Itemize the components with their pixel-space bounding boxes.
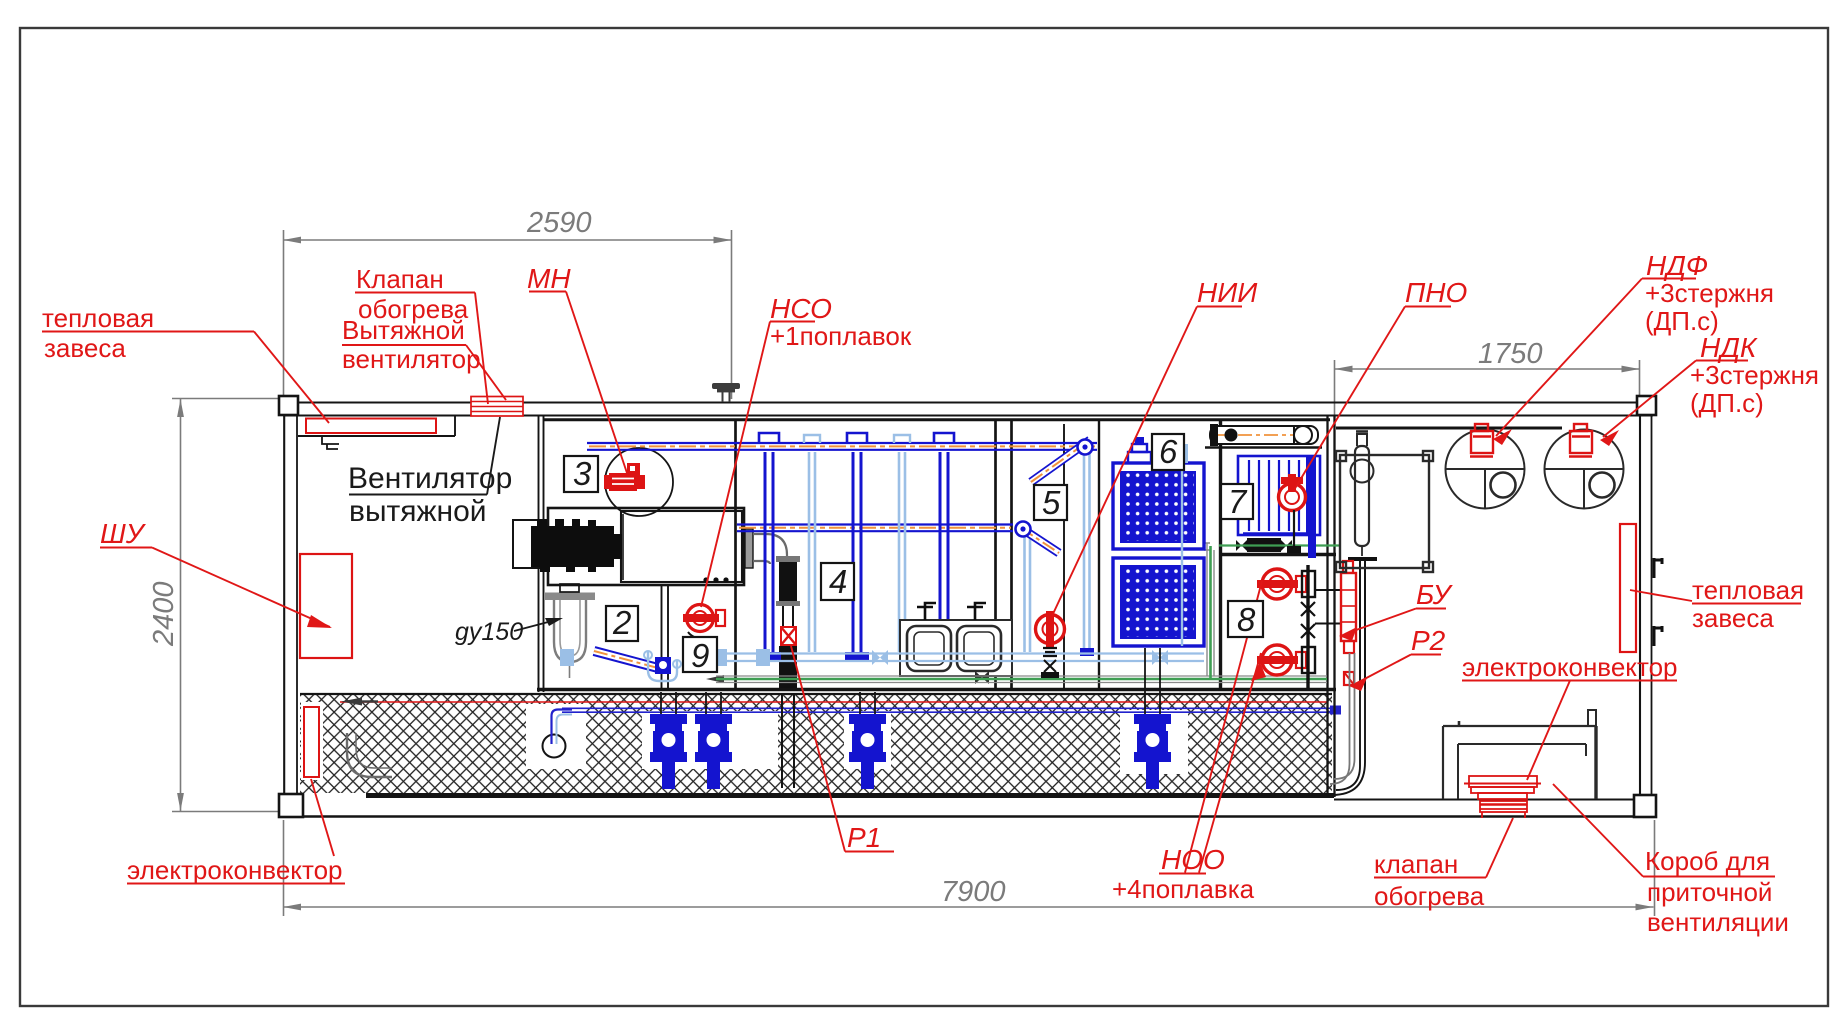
svg-text:ПНО: ПНО	[1405, 277, 1467, 308]
svg-text:НДК: НДК	[1700, 332, 1758, 363]
svg-text:6: 6	[1159, 433, 1178, 470]
svg-text:1750: 1750	[1478, 338, 1543, 370]
svg-text:Клапан: Клапан	[356, 264, 444, 294]
svg-text:7900: 7900	[941, 876, 1006, 908]
svg-text:НОО: НОО	[1161, 844, 1225, 875]
svg-text:НИИ: НИИ	[1197, 277, 1258, 308]
svg-text:5: 5	[1042, 484, 1061, 521]
svg-text:вентилятор: вентилятор	[342, 344, 481, 374]
svg-text:4: 4	[829, 563, 847, 600]
svg-text:приточной: приточной	[1647, 877, 1772, 907]
svg-text:электроконвектор: электроконвектор	[127, 855, 343, 885]
svg-text:3: 3	[573, 455, 592, 492]
svg-text:электроконвектор: электроконвектор	[1462, 652, 1678, 682]
svg-text:Р1: Р1	[847, 822, 881, 853]
svg-text:+4поплавка: +4поплавка	[1112, 874, 1255, 904]
svg-text:завеса: завеса	[44, 333, 126, 363]
svg-text:тепловая: тепловая	[1692, 575, 1804, 605]
svg-text:НСО: НСО	[770, 293, 832, 324]
svg-text:+3стержня: +3стержня	[1645, 278, 1774, 308]
svg-text:НДФ: НДФ	[1646, 250, 1708, 281]
svg-text:+1поплавок: +1поплавок	[770, 321, 912, 351]
svg-text:обогрева: обогрева	[1374, 881, 1485, 911]
svg-text:7: 7	[1228, 483, 1248, 520]
svg-text:БУ: БУ	[1416, 579, 1454, 610]
svg-text:клапан: клапан	[1374, 849, 1458, 879]
svg-text:ШУ: ШУ	[100, 518, 147, 549]
svg-text:вытяжной: вытяжной	[349, 495, 487, 528]
svg-text:завеса: завеса	[1692, 603, 1774, 633]
svg-text:Вытяжной: Вытяжной	[342, 315, 465, 345]
svg-text:9: 9	[691, 637, 709, 674]
svg-text:+3стержня: +3стержня	[1690, 360, 1819, 390]
svg-text:тепловая: тепловая	[42, 303, 154, 333]
svg-text:вентиляции: вентиляции	[1647, 907, 1789, 937]
svg-text:8: 8	[1237, 601, 1256, 638]
svg-text:gy150: gy150	[455, 618, 523, 646]
svg-text:Короб для: Короб для	[1645, 846, 1770, 876]
svg-text:2400: 2400	[148, 581, 180, 647]
svg-text:МН: МН	[527, 263, 571, 294]
svg-text:(ДП.с): (ДП.с)	[1690, 388, 1764, 418]
svg-text:2: 2	[612, 604, 631, 641]
svg-text:2590: 2590	[526, 207, 592, 239]
svg-text:Р2: Р2	[1411, 625, 1446, 656]
